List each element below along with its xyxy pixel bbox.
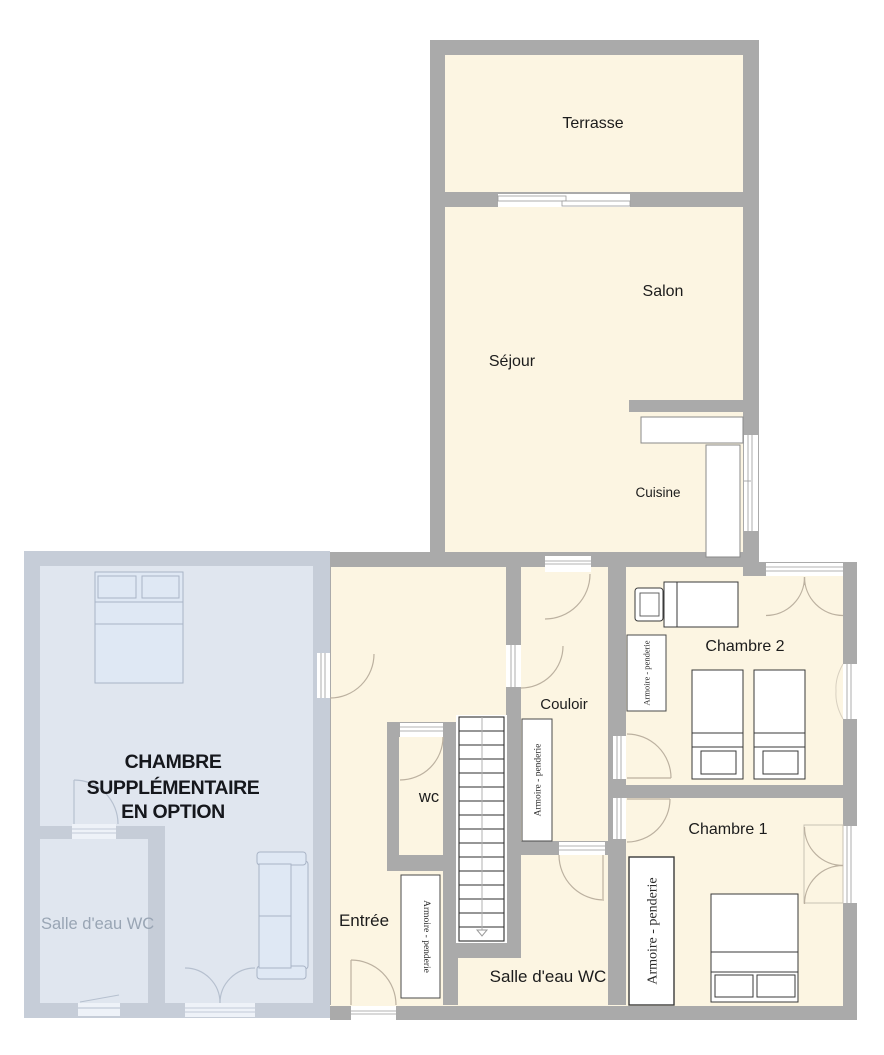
svg-text:Salle d'eau WC: Salle d'eau WC	[490, 967, 607, 986]
svg-text:Armoire - penderie: Armoire - penderie	[642, 640, 652, 705]
svg-text:wc: wc	[418, 788, 439, 806]
svg-text:Armoire - penderie: Armoire - penderie	[534, 744, 544, 817]
svg-text:Terrasse: Terrasse	[562, 115, 623, 132]
svg-text:Armoire - penderie: Armoire - penderie	[421, 900, 431, 973]
svg-text:EN OPTION: EN OPTION	[121, 801, 225, 823]
svg-text:Chambre 1: Chambre 1	[688, 821, 767, 838]
svg-text:Salon: Salon	[643, 283, 684, 300]
svg-text:Séjour: Séjour	[489, 353, 536, 370]
svg-text:Cuisine: Cuisine	[635, 485, 680, 500]
svg-text:Salle d'eau WC: Salle d'eau WC	[41, 915, 154, 933]
svg-text:Chambre 2: Chambre 2	[705, 638, 784, 655]
svg-text:CHAMBRE: CHAMBRE	[125, 751, 222, 773]
svg-text:Couloir: Couloir	[540, 696, 588, 713]
svg-text:Armoire - penderie: Armoire - penderie	[646, 877, 661, 984]
svg-text:Entrée: Entrée	[339, 911, 389, 930]
svg-text:SUPPLÉMENTAIRE: SUPPLÉMENTAIRE	[87, 776, 260, 799]
